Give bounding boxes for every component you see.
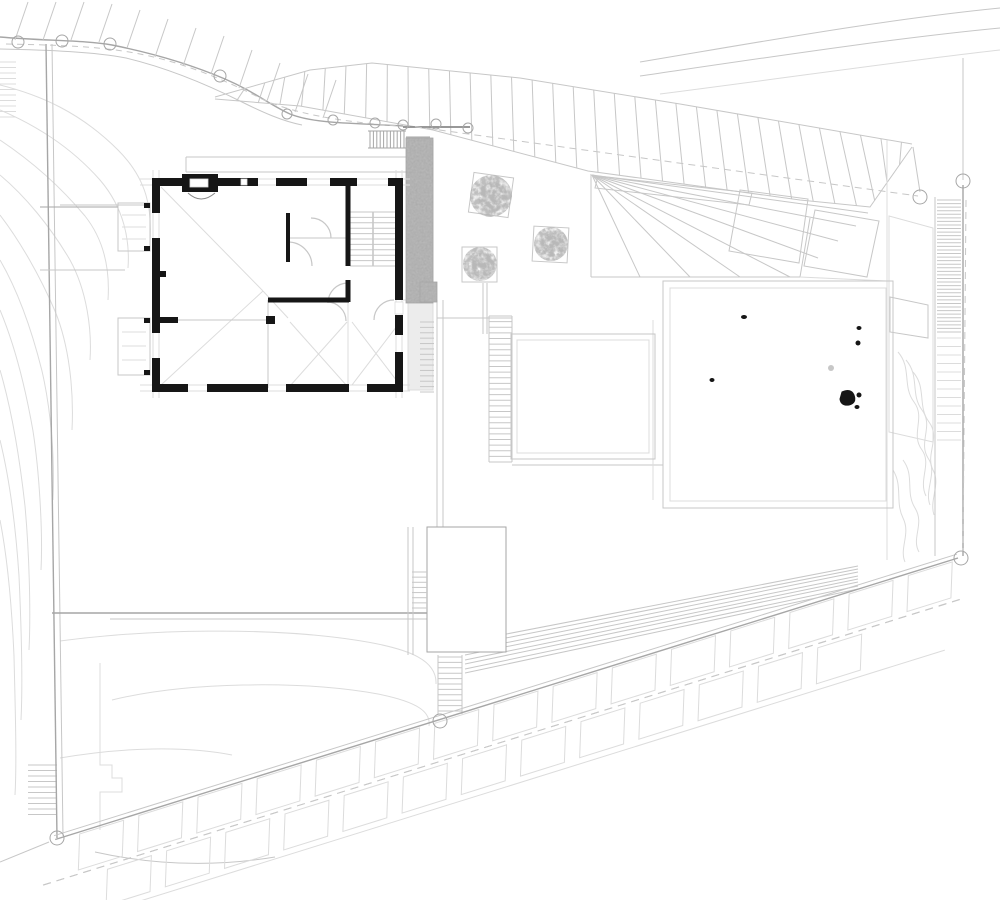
concrete-retaining-wall [406,138,437,303]
site-plan-canvas [0,0,1000,900]
house-floor-plan [140,170,410,398]
site-plan-sheet [0,0,1000,900]
site-linework [0,44,966,885]
trees [462,172,569,282]
terrain-contours [0,2,1000,863]
